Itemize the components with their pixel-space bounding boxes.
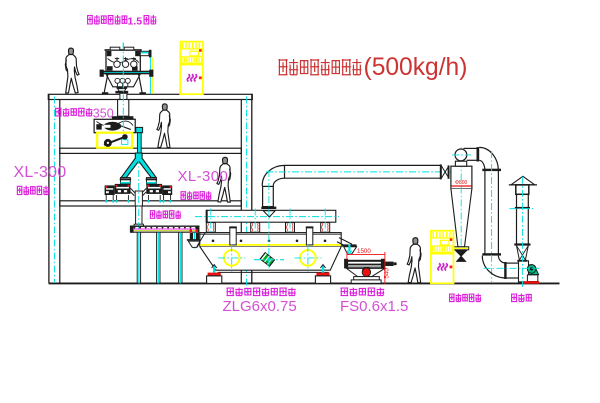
svg-text:XL-300: XL-300 xyxy=(178,168,229,185)
svg-text:1.5: 1.5 xyxy=(128,16,143,28)
svg-text:1500: 1500 xyxy=(357,248,371,255)
svg-text:ZLG6x0.75: ZLG6x0.75 xyxy=(223,298,297,315)
svg-text:540: 540 xyxy=(384,268,391,279)
svg-text:XL-300: XL-300 xyxy=(14,164,67,181)
svg-text:(500kg/h): (500kg/h) xyxy=(364,54,468,81)
svg-text:350: 350 xyxy=(93,107,114,121)
svg-text:FS0.6x1.5: FS0.6x1.5 xyxy=(340,298,408,315)
